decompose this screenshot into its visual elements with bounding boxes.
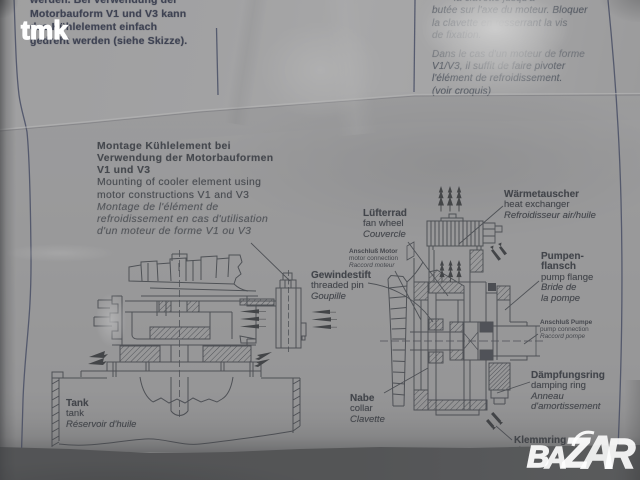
svg-text:R: R (605, 430, 636, 477)
